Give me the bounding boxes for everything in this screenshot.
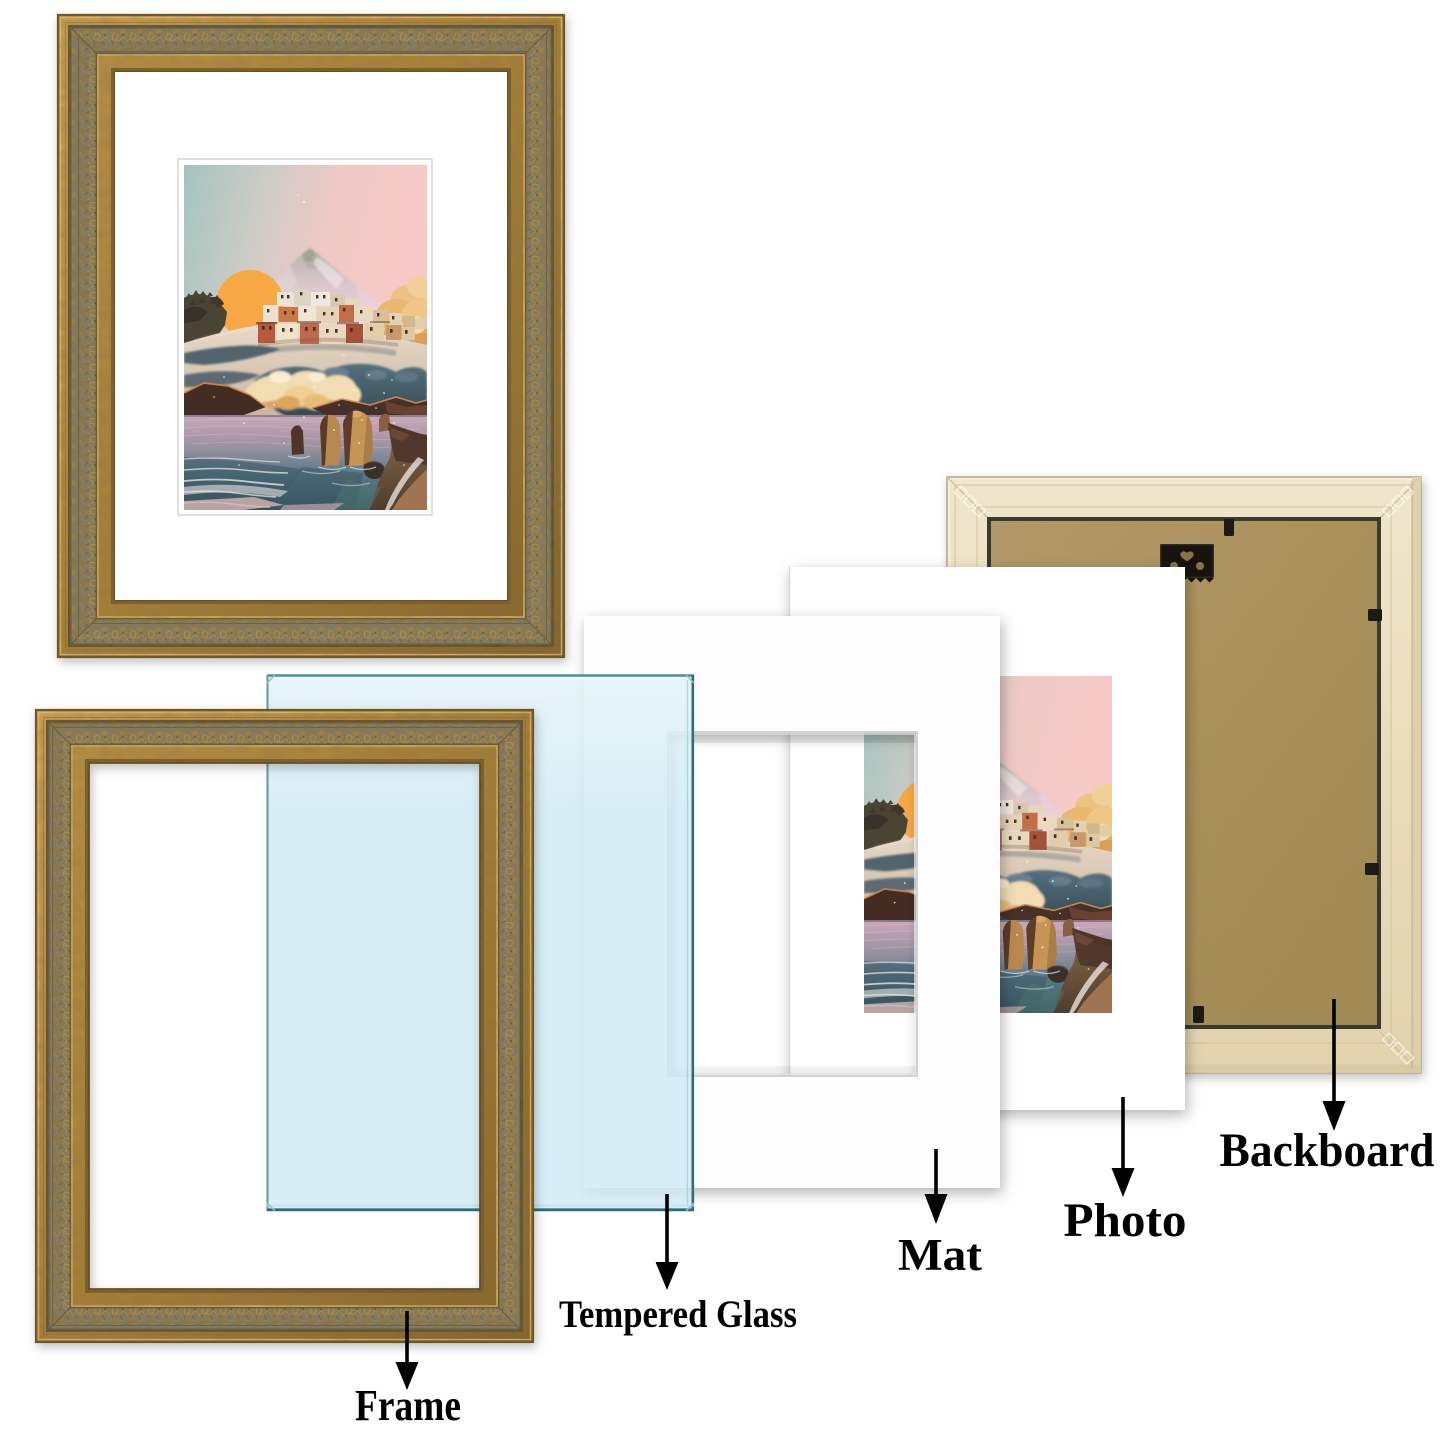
svg-text:Backboard: Backboard <box>1220 1124 1435 1177</box>
svg-text:Mat: Mat <box>898 1230 982 1280</box>
svg-text:Photo: Photo <box>1064 1194 1187 1247</box>
svg-text:Frame: Frame <box>355 1381 461 1430</box>
svg-text:Tempered Glass: Tempered Glass <box>559 1293 797 1336</box>
